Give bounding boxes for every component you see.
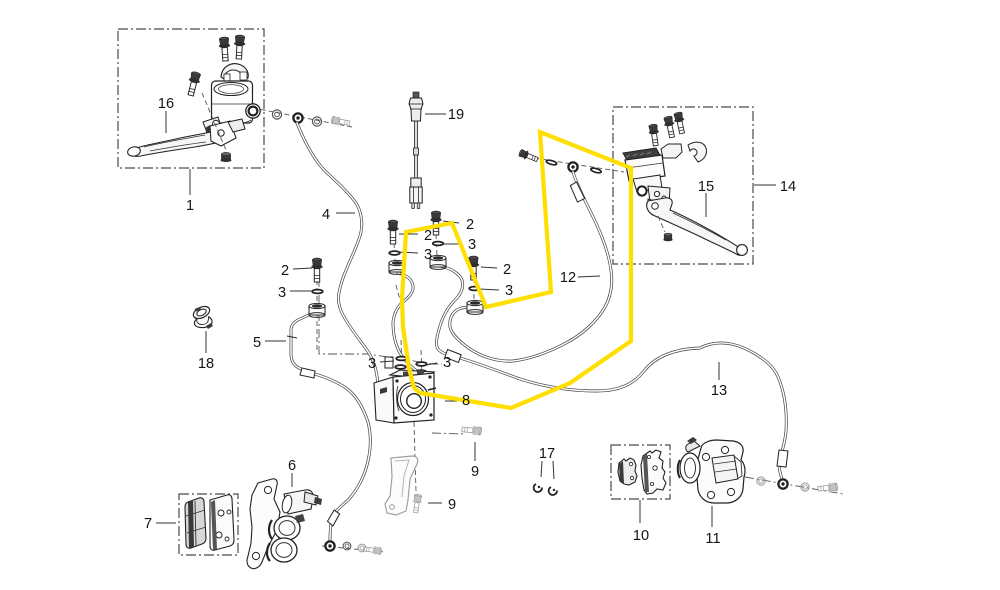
svg-text:11: 11 (705, 531, 720, 547)
svg-text:2: 2 (281, 263, 289, 279)
svg-text:3: 3 (368, 356, 376, 372)
svg-text:2: 2 (466, 217, 474, 233)
svg-text:5: 5 (253, 335, 261, 351)
svg-text:13: 13 (711, 383, 727, 399)
svg-text:2: 2 (503, 262, 511, 278)
svg-text:16: 16 (158, 96, 174, 112)
svg-text:9: 9 (471, 464, 479, 480)
svg-text:3: 3 (443, 355, 451, 371)
svg-text:6: 6 (288, 458, 296, 474)
svg-text:4: 4 (322, 207, 330, 223)
svg-text:9: 9 (448, 497, 456, 513)
svg-text:2: 2 (424, 228, 432, 244)
svg-text:14: 14 (780, 179, 796, 195)
svg-text:15: 15 (698, 179, 714, 195)
svg-text:10: 10 (633, 528, 649, 544)
svg-text:7: 7 (144, 516, 152, 532)
svg-text:3: 3 (278, 285, 286, 301)
svg-text:18: 18 (198, 356, 214, 372)
svg-text:17: 17 (539, 446, 555, 462)
svg-text:19: 19 (448, 107, 464, 123)
svg-text:3: 3 (468, 237, 476, 253)
svg-text:12: 12 (560, 270, 576, 286)
svg-text:3: 3 (424, 247, 432, 263)
svg-text:8: 8 (462, 393, 470, 409)
svg-text:1: 1 (186, 198, 194, 214)
svg-text:3: 3 (505, 283, 513, 299)
